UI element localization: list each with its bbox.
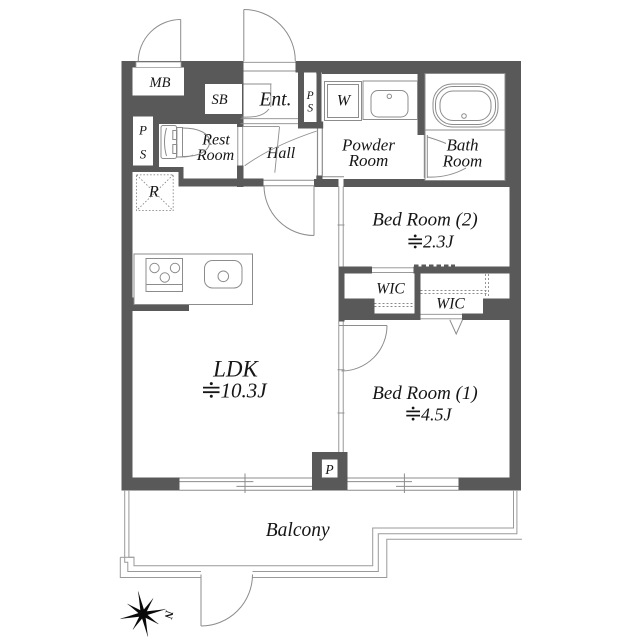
svg-text:Bed Room (2): Bed Room (2) [372, 210, 478, 231]
svg-text:P: P [324, 462, 333, 477]
svg-text:MB: MB [149, 75, 171, 91]
svg-text:SB: SB [211, 92, 227, 108]
svg-text:P: P [138, 123, 147, 138]
svg-text:S: S [307, 103, 313, 115]
svg-text:Bed Room (1): Bed Room (1) [372, 383, 478, 404]
svg-text:S: S [140, 147, 147, 162]
svg-text:4.5J: 4.5J [421, 404, 453, 424]
svg-text:Balcony: Balcony [266, 520, 330, 541]
svg-text:WIC: WIC [436, 295, 465, 312]
svg-text:WIC: WIC [376, 281, 405, 298]
svg-text:W: W [337, 93, 352, 110]
svg-text:Hall: Hall [266, 145, 296, 162]
svg-text:2.3J: 2.3J [423, 232, 455, 252]
svg-text:R: R [148, 184, 159, 201]
svg-text:10.3J: 10.3J [221, 379, 269, 403]
svg-text:Room: Room [442, 152, 483, 171]
svg-text:P: P [306, 90, 314, 102]
svg-text:Room: Room [196, 147, 234, 164]
svg-text:Ent.: Ent. [259, 90, 292, 111]
svg-text:Room: Room [348, 151, 389, 170]
